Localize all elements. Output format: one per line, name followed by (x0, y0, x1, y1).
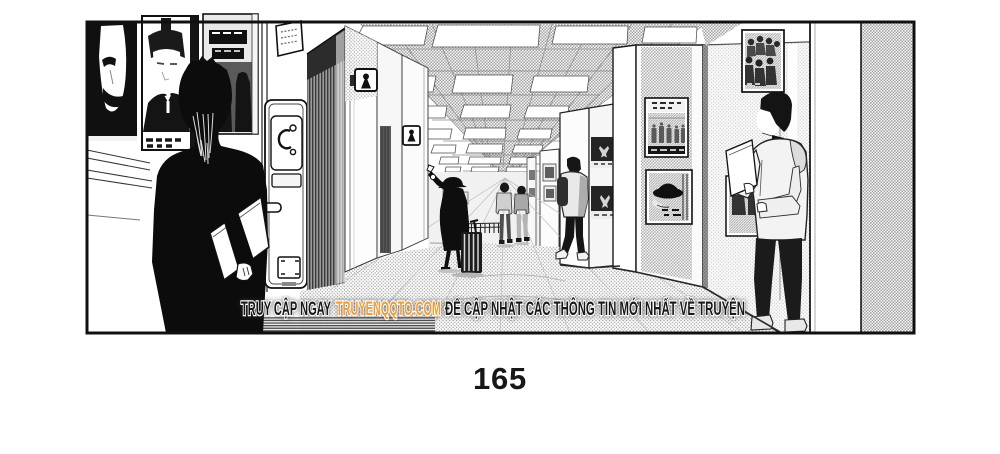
svg-text:ĐỂ CẬP NHẬT CÁC THÔNG TIN MỚI: ĐỂ CẬP NHẬT CÁC THÔNG TIN MỚI NHẤT VỀ TR… (445, 298, 745, 320)
svg-text:TRUY CẬP NGAY: TRUY CẬP NGAY (241, 298, 331, 320)
svg-text:TRUYENQQTO.COM: TRUYENQQTO.COM (336, 299, 441, 320)
svg-text:165: 165 (473, 361, 527, 396)
